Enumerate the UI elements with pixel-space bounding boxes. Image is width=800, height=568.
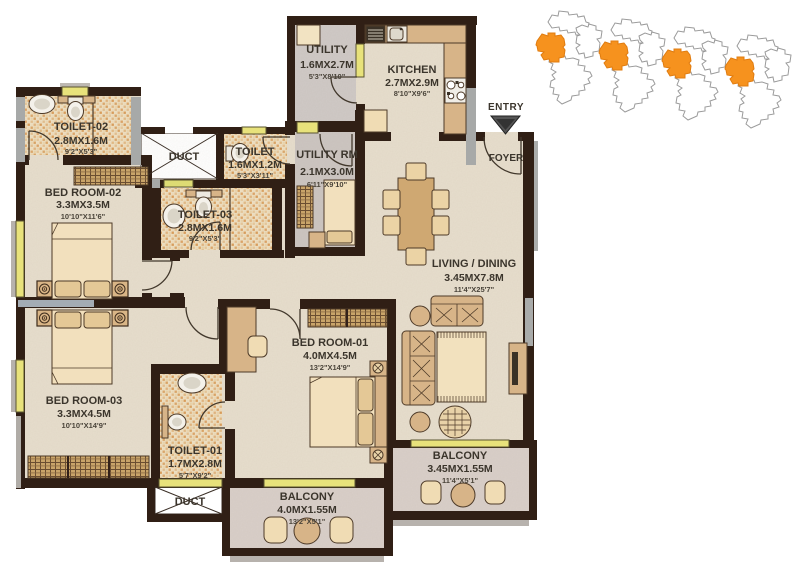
svg-text:2.8MX1.6M: 2.8MX1.6M	[54, 135, 108, 147]
svg-text:KITCHEN: KITCHEN	[388, 64, 437, 76]
svg-text:BALCONY: BALCONY	[280, 491, 335, 503]
svg-text:11'4"X25'7": 11'4"X25'7"	[454, 285, 495, 294]
svg-text:TOILET-02: TOILET-02	[54, 121, 108, 133]
svg-text:8'10"X9'6": 8'10"X9'6"	[394, 89, 431, 98]
svg-text:9'2"X5'3": 9'2"X5'3"	[65, 147, 98, 156]
svg-text:4.0MX1.55M: 4.0MX1.55M	[277, 504, 337, 516]
svg-text:DUCT: DUCT	[169, 151, 200, 163]
svg-text:10'10"X14'9": 10'10"X14'9"	[62, 421, 107, 430]
svg-text:TOILET-03: TOILET-03	[178, 209, 232, 221]
svg-text:BED ROOM-03: BED ROOM-03	[46, 395, 122, 407]
svg-text:5'7"X9'2": 5'7"X9'2"	[179, 471, 212, 480]
svg-text:9'2"X5'3": 9'2"X5'3"	[189, 234, 222, 243]
svg-text:2.7MX2.9M: 2.7MX2.9M	[385, 77, 439, 89]
svg-text:13'2"X14'9": 13'2"X14'9"	[310, 363, 351, 372]
svg-text:1.7MX2.8M: 1.7MX2.8M	[168, 458, 222, 470]
svg-text:2.1MX3.0M: 2.1MX3.0M	[300, 166, 354, 178]
svg-text:3.45MX7.8M: 3.45MX7.8M	[444, 272, 504, 284]
svg-text:6'11"X9'10": 6'11"X9'10"	[307, 180, 348, 189]
svg-text:1.6MX2.7M: 1.6MX2.7M	[300, 59, 354, 71]
svg-text:FOYER: FOYER	[489, 153, 524, 164]
svg-text:3.3MX4.5M: 3.3MX4.5M	[57, 408, 111, 420]
svg-text:DUCT: DUCT	[175, 496, 206, 508]
svg-text:4.0MX4.5M: 4.0MX4.5M	[303, 350, 357, 362]
svg-text:10'10"X11'6": 10'10"X11'6"	[61, 212, 106, 221]
svg-text:UTILITY RM: UTILITY RM	[296, 149, 358, 161]
svg-text:UTILITY: UTILITY	[306, 44, 348, 56]
svg-text:BED ROOM-01: BED ROOM-01	[292, 337, 368, 349]
svg-text:3.45MX1.55M: 3.45MX1.55M	[427, 463, 493, 475]
svg-text:3.3MX3.5M: 3.3MX3.5M	[56, 199, 110, 211]
svg-text:11'4"X5'1": 11'4"X5'1"	[442, 476, 479, 485]
svg-text:BALCONY: BALCONY	[433, 450, 488, 462]
svg-text:ENTRY: ENTRY	[488, 102, 524, 113]
svg-text:2.8MX1.6M: 2.8MX1.6M	[178, 222, 232, 234]
svg-text:TOILET: TOILET	[236, 146, 275, 158]
svg-text:LIVING / DINING: LIVING / DINING	[432, 258, 516, 270]
svg-text:1.6MX1.2M: 1.6MX1.2M	[228, 159, 282, 171]
svg-text:5'3"X8'10": 5'3"X8'10"	[309, 72, 346, 81]
svg-text:5'3"X3'11": 5'3"X3'11"	[237, 171, 274, 180]
svg-text:BED ROOM-02: BED ROOM-02	[45, 187, 121, 199]
svg-text:13'2"X5'1": 13'2"X5'1"	[289, 517, 326, 526]
svg-text:TOILET-01: TOILET-01	[168, 445, 222, 457]
